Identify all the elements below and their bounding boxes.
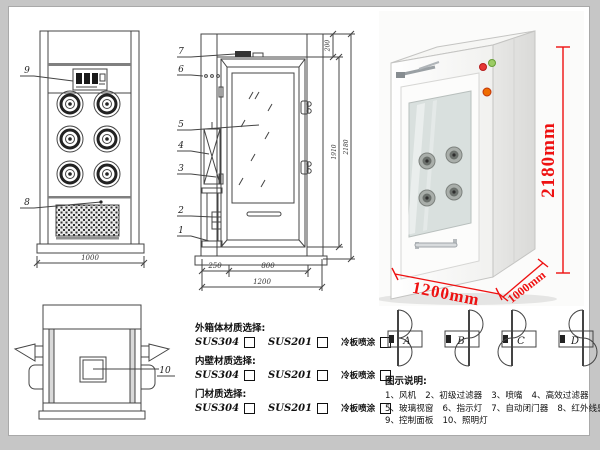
door-option-label: A — [402, 336, 410, 347]
callout-6: 6 — [178, 65, 184, 75]
callout-9: 9 — [24, 66, 30, 76]
legend-item: 2、初级过滤器 — [425, 391, 482, 401]
door-option-a[interactable]: A — [383, 307, 427, 369]
legend-line: 9、控制面板10、照明灯 — [385, 415, 593, 428]
legend-item: 9、控制面板 — [385, 416, 433, 426]
callout-4: 4 — [177, 141, 184, 151]
control-panel — [73, 69, 107, 90]
air-return-grille — [56, 205, 119, 236]
callout-7: 7 — [178, 47, 184, 57]
material-row-options: SUS304 SUS201 冷板喷涂 — [195, 336, 383, 348]
legend: 图示说明: 1、风机2、初级过滤器3、喷嘴4、高效过滤器 5、玻璃视窗6、指示灯… — [385, 373, 593, 428]
door-option-label: C — [517, 336, 525, 347]
legend-item: 8、红外线感应器 — [557, 404, 600, 414]
checkbox[interactable] — [244, 370, 255, 381]
door-option-b[interactable]: B — [440, 307, 484, 369]
option-label: SUS201 — [268, 403, 312, 414]
dim-250: 250 — [207, 262, 222, 270]
nozzles — [57, 91, 120, 187]
photo-door-handle — [415, 243, 457, 247]
checkbox[interactable] — [317, 370, 328, 381]
photo-height-dim: 2180mm — [538, 122, 559, 198]
door-option-d[interactable]: D — [554, 307, 598, 369]
materials-selection: 外箱体材质选择: SUS304 SUS201 冷板喷涂 内壁材质选择: SUS3… — [195, 315, 383, 418]
legend-item: 5、玻璃视窗 — [385, 404, 433, 414]
dim-1200: 1200 — [253, 278, 271, 286]
door-hinges — [301, 101, 311, 174]
door-option-c[interactable]: C — [497, 307, 541, 369]
fan-filter-box — [204, 122, 220, 184]
checkbox[interactable] — [244, 337, 255, 348]
material-row-options: SUS304 SUS201 冷板喷涂 — [195, 369, 383, 381]
checkbox[interactable] — [317, 403, 328, 414]
front-width-value: 1000 — [81, 254, 99, 262]
top-view-drawing: 10 — [13, 299, 183, 439]
door-closer — [235, 51, 263, 57]
dim-1910: 1910 — [331, 144, 338, 159]
dim-2180: 2180 — [343, 139, 350, 155]
material-row-label: 门材质选择: — [195, 386, 383, 400]
photo-door — [401, 73, 479, 279]
green-indicator-light — [489, 60, 496, 67]
callout-8: 8 — [24, 198, 30, 208]
side-view-drawing: 7 6 5 4 3 2 1 200 1910 2180 250 800 1200 — [169, 9, 359, 309]
checkbox[interactable] — [244, 403, 255, 414]
door-swing-options: A B C — [383, 307, 598, 369]
callout-10: 10 — [159, 366, 171, 376]
door-section — [219, 59, 305, 247]
front-view-drawing: 9 8 1000 — [13, 19, 163, 269]
option-label: SUS201 — [268, 337, 312, 348]
material-row-options: SUS304 SUS201 冷板喷涂 — [195, 402, 383, 414]
option-label: SUS304 — [195, 403, 239, 414]
option-label: 冷板喷涂 — [341, 369, 375, 381]
left-hinge-wing — [15, 344, 43, 389]
legend-item: 10、照明灯 — [442, 416, 487, 426]
air-shower-photo: 2180mm 1200mm 1000mm — [379, 11, 584, 306]
legend-line: 1、风机2、初级过滤器3、喷嘴4、高效过滤器 — [385, 390, 593, 403]
material-row-label: 内壁材质选择: — [195, 353, 383, 367]
door-option-label: B — [456, 336, 464, 347]
legend-item: 6、指示灯 — [442, 404, 482, 414]
right-wall-section — [307, 34, 323, 256]
checkbox[interactable] — [317, 337, 328, 348]
legend-item: 7、自动闭门器 — [491, 404, 548, 414]
option-label: SUS201 — [268, 370, 312, 381]
callout-1: 1 — [178, 226, 184, 236]
legend-item: 1、风机 — [385, 391, 416, 401]
callout-5: 5 — [178, 120, 184, 130]
red-indicator-light — [480, 64, 487, 71]
dim-200: 200 — [325, 40, 332, 53]
callout-3: 3 — [178, 164, 184, 174]
door-handle — [247, 212, 281, 216]
legend-item: 4、高效过滤器 — [532, 391, 589, 401]
option-label: SUS304 — [195, 337, 239, 348]
option-label: 冷板喷涂 — [341, 402, 375, 414]
dim-800: 800 — [261, 262, 275, 270]
legend-item: 3、喷嘴 — [491, 391, 522, 401]
cabinet-base — [37, 244, 144, 253]
spec-sheet-page: 9 8 1000 — [8, 6, 590, 436]
legend-line: 5、玻璃视窗6、指示灯7、自动闭门器8、红外线感应器 — [385, 403, 593, 416]
nozzle-column — [202, 188, 222, 247]
material-row-label: 外箱体材质选择: — [195, 320, 383, 334]
option-label: 冷板喷涂 — [341, 336, 375, 348]
door-option-label: D — [570, 336, 579, 347]
callout-2: 2 — [177, 206, 184, 216]
legend-title: 图示说明: — [385, 373, 593, 387]
orange-button — [483, 88, 491, 96]
option-label: SUS304 — [195, 370, 239, 381]
